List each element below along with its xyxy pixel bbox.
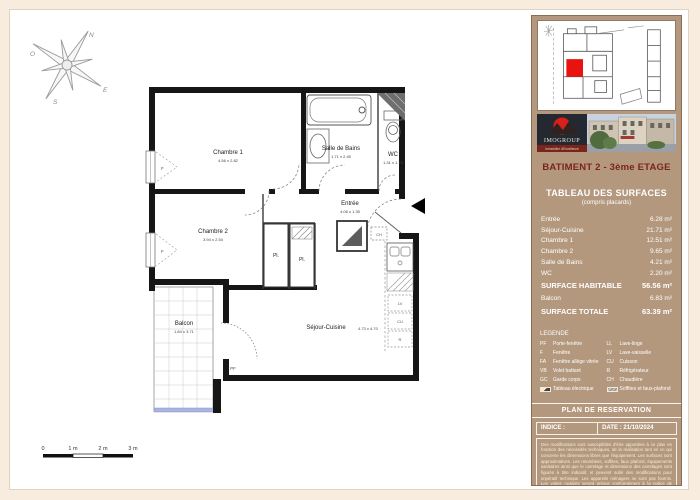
legend-label: Tableau électrique	[553, 385, 594, 394]
scale-2m: 2 m	[98, 446, 108, 452]
room-dims-chambre1: 4.56 x 2.82	[218, 158, 239, 163]
row-value: 2.20 m²	[650, 269, 672, 280]
row-label: Chambre 2	[541, 247, 573, 258]
location-mini-plan	[538, 21, 675, 110]
legend-label: Soffites et faux-plafond	[620, 385, 671, 394]
scale-3m: 3 m	[128, 446, 138, 452]
room-label-sdb: Salle de Bains	[322, 146, 360, 152]
row-value: 6.28 m²	[650, 215, 672, 226]
residence-photo	[587, 114, 676, 152]
row-label: SURFACE HABITABLE	[541, 280, 622, 293]
fridge-label: R	[399, 337, 402, 342]
table-row-surface-totale: SURFACE TOTALE63.39 m²	[541, 306, 672, 319]
row-label: WC	[541, 269, 552, 280]
legend-abbr: F	[540, 349, 553, 358]
surfaces-table-subtitle: (compris placards)	[532, 200, 681, 206]
compass-north-label: N	[89, 32, 94, 39]
compass-west-label: O	[30, 51, 35, 58]
entrance-door-leaf	[375, 212, 401, 233]
row-label: Chambre 1	[541, 236, 573, 247]
legend-label: Cuisson	[620, 358, 638, 367]
legal-disclaimer: Des modifications sont susceptibles d'êt…	[536, 438, 677, 486]
window-label: F	[161, 166, 164, 171]
legend-right-column: LLLave-linge LVLave-vaisselle CUCuisson …	[607, 340, 674, 394]
room-dims-entree: 4.06 x 1.35	[340, 209, 361, 214]
table-row-surface-habitable: SURFACE HABITABLE56.56 m²	[541, 280, 672, 293]
legend-label: Garde corps	[553, 376, 581, 385]
room-label-entree: Entrée	[341, 201, 359, 207]
entrance-arrow-icon	[411, 198, 425, 214]
legend-item: PFPorte-fenêtre	[540, 340, 607, 349]
legend-item: RRéfrigérateur	[607, 367, 674, 376]
compass-south-label: S	[53, 99, 58, 106]
surfaces-table-title: TABLEAU DES SURFACES	[532, 188, 681, 198]
legend-label: Porte-fenêtre	[553, 340, 582, 349]
row-label: Entrée	[541, 215, 560, 226]
scale-0: 0	[41, 446, 44, 452]
room-dims-sejour: 4.73 x 4.70	[358, 326, 379, 331]
legend-item: FAFenêtre allège vitrée	[540, 358, 607, 367]
window-chambre1: F	[146, 151, 177, 183]
building-title: BATIMENT 2 - 3ème ETAGE	[532, 162, 681, 173]
closet-label-1: Pl.	[273, 253, 279, 259]
cooktop-label: CU	[397, 319, 403, 324]
room-label-sejour: Séjour-Cuisine	[306, 325, 346, 331]
room-dims-balcon: 1.84 x 3.71	[174, 329, 195, 334]
table-row: Entrée6.28 m²	[541, 215, 672, 226]
window-label: F	[161, 249, 164, 254]
legend-left-column: PFPorte-fenêtre FFenêtre FAFenêtre allèg…	[540, 340, 607, 394]
legend-abbr: LV	[607, 349, 620, 358]
legend-label: Lave-linge	[620, 340, 643, 349]
row-label: Balcon	[541, 294, 561, 305]
row-value: 63.39 m²	[642, 306, 672, 319]
balcony-guardrail	[154, 408, 214, 412]
legend-item: VBVolet battant	[540, 367, 607, 376]
row-value: 12.51 m²	[646, 236, 672, 247]
row-value: 9.65 m²	[650, 247, 672, 258]
info-sidebar: IMOGROUP Immobilier d'Excellence	[531, 15, 682, 486]
table-row: Chambre 112.51 m²	[541, 236, 672, 247]
logo-brand-text: IMOGROUP	[544, 137, 580, 144]
legend-item: GCGarde corps	[540, 376, 607, 385]
table-row: Séjour-Cuisine21.71 m²	[541, 226, 672, 237]
legend-label: Fenêtre allège vitrée	[553, 358, 599, 367]
legend-label: Chaudière	[620, 376, 643, 385]
boiler-label: CH	[376, 232, 382, 237]
legend-abbr: CU	[607, 358, 620, 367]
soffit-symbol-icon	[607, 387, 618, 392]
legend-item: FFenêtre	[540, 349, 607, 358]
date-cell: DATE : 21/10/2024	[598, 425, 653, 431]
room-dims-wc: 1.31 x 1.74	[383, 160, 404, 165]
highlighted-unit	[566, 59, 583, 77]
legend-label: Lave-vaisselle	[620, 349, 652, 358]
room-label-chambre2: Chambre 2	[198, 229, 228, 235]
legend-item-soffit: Soffites et faux-plafond	[607, 385, 674, 394]
room-label-chambre1: Chambre 1	[213, 150, 243, 156]
legend-item: CUCuisson	[607, 358, 674, 367]
surfaces-table: Entrée6.28 m² Séjour-Cuisine21.71 m² Cha…	[541, 215, 672, 319]
row-value: 21.71 m²	[646, 226, 672, 237]
closet-label-2: Pl.	[299, 257, 305, 263]
pf-door-label: PF	[230, 366, 236, 371]
scale-1m: 1 m	[68, 446, 78, 452]
bathtub	[307, 95, 371, 125]
legend-label: Volet battant	[553, 367, 581, 376]
legend-label: Réfrigérateur	[620, 367, 649, 376]
row-value: 4.21 m²	[650, 258, 672, 269]
balcony-tiles	[154, 287, 213, 411]
electrical-panel	[337, 221, 367, 251]
legend-item-electrical: Tableau électrique	[540, 385, 607, 394]
legend-abbr: PF	[540, 340, 553, 349]
legend-item: LVLave-vaisselle	[607, 349, 674, 358]
indice-cell: INDICE :	[537, 423, 598, 434]
building-location-thumbnail	[537, 20, 676, 111]
room-label-balcon: Balcon	[175, 321, 193, 327]
row-value: 6.83 m²	[650, 294, 672, 305]
brand-row: IMOGROUP Immobilier d'Excellence	[537, 114, 676, 152]
room-dims-sdb: 1.71 x 2.45	[331, 154, 352, 159]
compass-east-label: E	[103, 87, 108, 94]
table-row: WC2.20 m²	[541, 269, 672, 280]
table-row: Salle de Bains4.21 m²	[541, 258, 672, 269]
dishwasher-label: LV	[398, 301, 403, 306]
row-value: 56.56 m²	[642, 280, 672, 293]
room-label-wc: WC	[388, 152, 399, 158]
legend-item: CHChaudière	[607, 376, 674, 385]
indice-date-row: INDICE : DATE : 21/10/2024	[536, 422, 677, 435]
table-row: Chambre 29.65 m²	[541, 247, 672, 258]
row-label: SURFACE TOTALE	[541, 306, 608, 319]
legend-abbr: VB	[540, 367, 553, 376]
kitchen-counter: LV CU R	[385, 241, 413, 351]
legend-abbr: LL	[607, 340, 620, 349]
row-label: Salle de Bains	[541, 258, 583, 269]
legend-abbr: R	[607, 367, 620, 376]
imogroup-logo: IMOGROUP Immobilier d'Excellence	[537, 114, 587, 152]
table-row: Balcon6.83 m²	[541, 294, 672, 305]
legend-abbr: GC	[540, 376, 553, 385]
legend-abbr: FA	[540, 358, 553, 367]
scale-bar: 0 1 m 2 m 3 m	[41, 446, 138, 458]
reservation-plan-title: PLAN DE RESERVATION	[532, 403, 681, 418]
legend-title: LEGENDE	[540, 331, 673, 337]
legend-item: LLLave-linge	[607, 340, 674, 349]
legend-abbr: CH	[607, 376, 620, 385]
boiler-box: CH	[371, 227, 387, 240]
electrical-panel-symbol-icon	[540, 387, 551, 392]
row-label: Séjour-Cuisine	[541, 226, 584, 237]
legend-section: LEGENDE PFPorte-fenêtre FFenêtre FAFenêt…	[540, 331, 673, 394]
compass-rose-icon	[12, 10, 122, 120]
logo-tagline: Immobilier d'Excellence	[545, 147, 579, 151]
legend-label: Fenêtre	[553, 349, 570, 358]
window-chambre2: F	[146, 233, 177, 267]
room-dims-chambre2: 3.94 x 2.54	[203, 237, 224, 242]
document-page: N O E S	[9, 9, 689, 490]
